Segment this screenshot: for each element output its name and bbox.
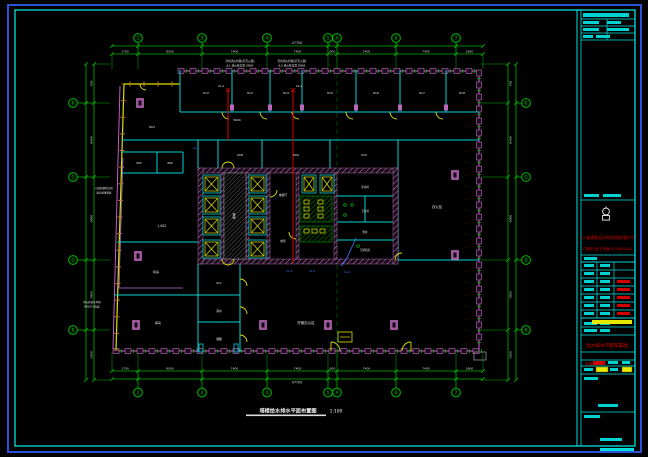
svg-text:6: 6 bbox=[395, 36, 398, 41]
m3-label: 610 bbox=[361, 153, 367, 157]
svg-text:D: D bbox=[524, 258, 527, 263]
svg-text:900: 900 bbox=[330, 366, 336, 370]
svg-text:5: 5 bbox=[327, 36, 330, 41]
plan-symbols bbox=[133, 84, 459, 351]
svg-text:47700: 47700 bbox=[292, 41, 302, 45]
top1b-label: JL1-消火栓立管 DN65 bbox=[226, 64, 254, 68]
drawing-title-text: 塔楼给水排水平面布置图 bbox=[259, 407, 316, 415]
svg-text:7400: 7400 bbox=[294, 49, 302, 53]
svg-text:A: A bbox=[336, 36, 339, 41]
title-block bbox=[581, 13, 635, 441]
svg-text:7400: 7400 bbox=[422, 366, 430, 370]
svg-text:1700: 1700 bbox=[121, 366, 129, 370]
right-label: 办公区 bbox=[432, 204, 443, 209]
title-underline bbox=[246, 415, 326, 417]
drawing-scale-text: 1:100 bbox=[330, 409, 343, 415]
t5-label: 616 bbox=[373, 91, 379, 95]
xl1-label: XL-1 bbox=[218, 84, 224, 88]
left1-label: 自动喷淋给水管 bbox=[95, 186, 113, 190]
svg-text:6: 6 bbox=[395, 390, 398, 395]
xl6-label: XL-6 bbox=[344, 270, 350, 274]
l5-label: 库房 bbox=[155, 320, 161, 325]
titleblock-drawing-title: 给水排水平面布置图 bbox=[586, 342, 628, 349]
top1a-label: 室内消火栓箱(带灭火器) bbox=[226, 59, 255, 63]
svg-text:8400: 8400 bbox=[509, 136, 513, 144]
svg-text:4: 4 bbox=[266, 390, 269, 395]
c1-label: 电梯厅 bbox=[279, 193, 288, 197]
c6-label: 管井 bbox=[362, 230, 368, 234]
m1-label: 608 bbox=[237, 153, 243, 157]
svg-text:7400: 7400 bbox=[422, 49, 430, 53]
svg-text:A: A bbox=[336, 390, 339, 395]
c2-label: 前室 bbox=[280, 239, 286, 243]
c3-label: 楼梯 bbox=[231, 213, 236, 219]
svg-text:7400: 7400 bbox=[363, 366, 371, 370]
c7-label: 空调机房 bbox=[360, 248, 371, 252]
svg-text:9000: 9000 bbox=[89, 215, 93, 223]
svg-text:9000: 9000 bbox=[509, 215, 513, 223]
top2b-label: JL2-消火栓立管 DN65 bbox=[278, 64, 306, 68]
svg-text:8000: 8000 bbox=[166, 49, 174, 53]
xl3-label: XL-3 bbox=[286, 269, 292, 273]
svg-text:5: 5 bbox=[327, 390, 330, 395]
svg-text:K: K bbox=[72, 101, 75, 106]
t7-label: 618 bbox=[459, 91, 465, 95]
svg-text:7: 7 bbox=[455, 390, 458, 395]
svg-text:B: B bbox=[525, 328, 528, 333]
svg-text:2600: 2600 bbox=[466, 49, 474, 53]
svg-text:47700: 47700 bbox=[292, 381, 302, 385]
svg-text:G: G bbox=[524, 175, 527, 180]
corridor_dim-label: 3000 bbox=[233, 118, 241, 122]
svg-text:4: 4 bbox=[266, 36, 269, 41]
svg-text:2600: 2600 bbox=[466, 366, 474, 370]
t4-label: 615 bbox=[327, 91, 333, 95]
svg-text:B: B bbox=[72, 328, 75, 333]
svg-text:7400: 7400 bbox=[294, 366, 302, 370]
svg-text:7400: 7400 bbox=[363, 49, 371, 53]
svg-text:3: 3 bbox=[201, 390, 204, 395]
bl2-label: DN100 (暗装) bbox=[84, 305, 100, 309]
t6-label: 617 bbox=[419, 91, 425, 95]
l2-label: 606 bbox=[167, 161, 173, 165]
left2-label: 接自喷淋管井 bbox=[96, 191, 112, 195]
s1-label: 611 bbox=[216, 281, 222, 285]
t2-label: 613 bbox=[247, 91, 253, 95]
svg-text:1700: 1700 bbox=[121, 49, 129, 53]
top2a-label: 室内消火栓箱(带灭火器) bbox=[278, 59, 307, 63]
company-name: ××省建筑设计研究院有限公司 bbox=[579, 234, 635, 240]
l4-label: 机房 bbox=[153, 269, 159, 274]
drawing-number: 水施-18 bbox=[585, 361, 599, 366]
t1-label: 612 bbox=[203, 91, 209, 95]
company-logo bbox=[603, 207, 610, 221]
svg-text:7400: 7400 bbox=[231, 49, 239, 53]
l3-label: J-402 bbox=[157, 224, 167, 228]
svg-text:7400: 7400 bbox=[231, 366, 239, 370]
svg-text:900: 900 bbox=[330, 49, 336, 53]
bl1-label: 消火栓给水环管 bbox=[83, 300, 101, 304]
xl5-label: XL-5 bbox=[193, 146, 199, 150]
s2-label: 茶水 bbox=[216, 309, 222, 313]
xl2-label: XL-2 bbox=[296, 84, 302, 88]
svg-text:7800: 7800 bbox=[89, 291, 93, 299]
svg-text:8400: 8400 bbox=[89, 136, 93, 144]
c5-label: 卫生间 bbox=[361, 209, 369, 213]
building-walls bbox=[113, 69, 486, 361]
svg-text:1: 1 bbox=[137, 390, 140, 395]
svg-text:G: G bbox=[71, 175, 74, 180]
svg-text:D: D bbox=[71, 258, 74, 263]
company-certificate: 工程设计证书 甲级 A135002345 bbox=[582, 246, 632, 251]
svg-text:700: 700 bbox=[89, 81, 93, 87]
l1-label: 605 bbox=[136, 161, 142, 165]
svg-text:3: 3 bbox=[201, 36, 204, 41]
m2-label: 609 bbox=[293, 153, 299, 157]
svg-text:K: K bbox=[525, 101, 528, 106]
svg-text:7: 7 bbox=[455, 36, 458, 41]
svg-text:700: 700 bbox=[509, 81, 513, 87]
xl4-label: XL-4 bbox=[309, 269, 315, 273]
svg-text:7800: 7800 bbox=[509, 291, 513, 299]
svg-text:8000: 8000 bbox=[166, 366, 174, 370]
svg-text:1: 1 bbox=[137, 36, 140, 41]
big-label: 开敞办公区 bbox=[297, 320, 315, 325]
c4-label: 茶水间 bbox=[361, 185, 369, 189]
cad-drawing: 4770047700170017008000800074007400740074… bbox=[0, 0, 648, 457]
cad-sheet: 4770047700170017008000800074007400740074… bbox=[0, 0, 648, 457]
l0-label: 604 bbox=[149, 125, 155, 129]
t3-label: 614 bbox=[283, 91, 289, 95]
svg-text:5000: 5000 bbox=[509, 351, 513, 359]
grid-dimensions: 4770047700170017008000800074007400740074… bbox=[69, 34, 531, 397]
s3-label: 储藏 bbox=[216, 337, 222, 341]
svg-text:5000: 5000 bbox=[89, 351, 93, 359]
